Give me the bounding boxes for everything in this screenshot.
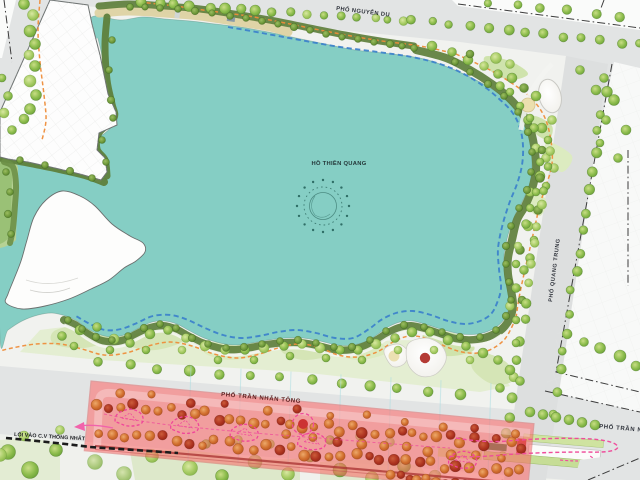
- svg-text:HỒ THIỀN QUANG: HỒ THIỀN QUANG: [311, 160, 366, 167]
